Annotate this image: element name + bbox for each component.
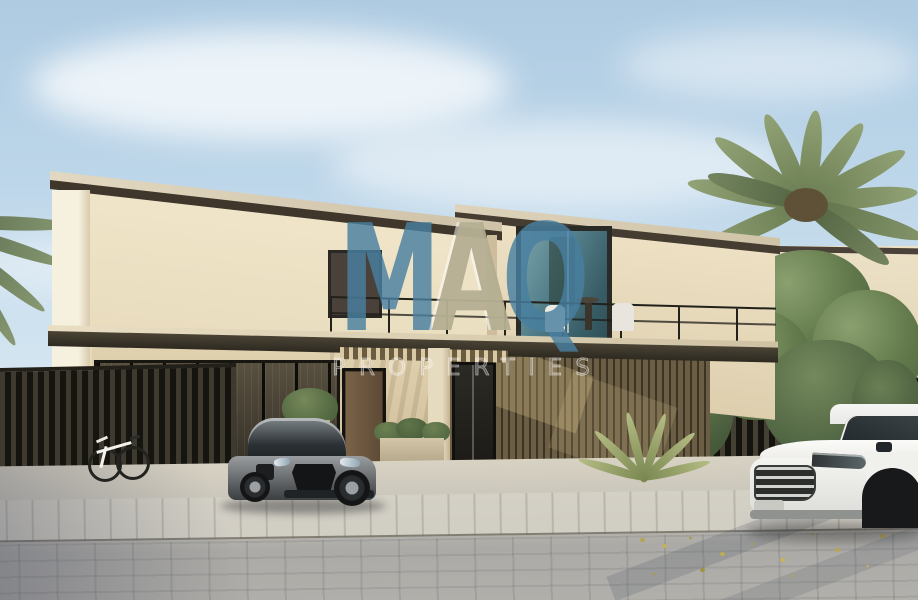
suv-grille bbox=[754, 465, 816, 501]
cloud bbox=[620, 30, 918, 100]
sports-car bbox=[226, 414, 380, 516]
bicycle-handlebar bbox=[130, 435, 140, 440]
suv-wheel bbox=[870, 480, 918, 528]
bicycle-wheel bbox=[116, 446, 150, 480]
watermark-brand: M A Q bbox=[346, 205, 577, 353]
suv-headlight bbox=[812, 453, 867, 470]
car-wheel bbox=[240, 472, 270, 502]
car-grille bbox=[292, 464, 336, 490]
bicycle-seat bbox=[96, 436, 108, 444]
car-wheel bbox=[334, 470, 370, 506]
villa-photo: 20 bbox=[0, 0, 918, 600]
fan-palm-bush bbox=[568, 396, 718, 488]
suv-mirror bbox=[876, 442, 892, 452]
suv-bumper-lip bbox=[750, 510, 872, 519]
watermark-letter-m: M bbox=[338, 205, 435, 353]
suv-white bbox=[746, 402, 918, 550]
bicycle bbox=[88, 424, 148, 482]
fallen-leaves bbox=[640, 538, 645, 542]
cloud bbox=[30, 30, 510, 140]
watermark-letter-q: Q bbox=[502, 205, 584, 353]
watermark-letter-a: A bbox=[431, 205, 506, 353]
palm-crown-core bbox=[784, 188, 828, 222]
watermark: M A Q PROPERTIES bbox=[296, 205, 626, 381]
